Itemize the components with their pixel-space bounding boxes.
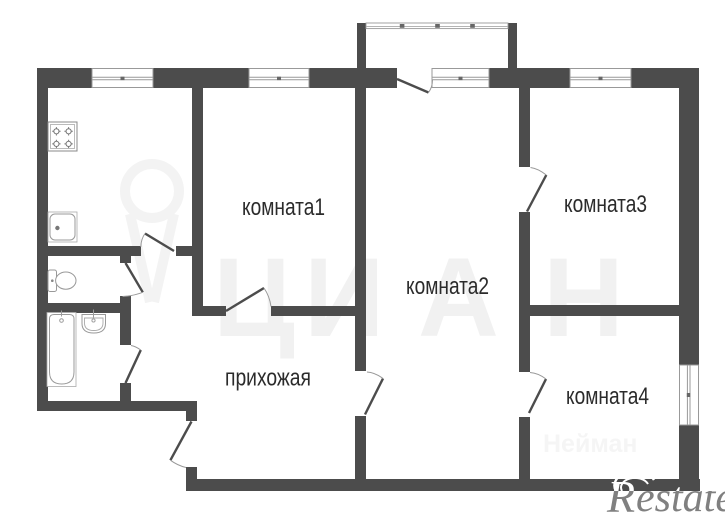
svg-text:И: И (304, 235, 385, 360)
svg-text:Нейман: Нейман (543, 430, 638, 458)
svg-text:комната2: комната2 (406, 273, 489, 300)
svg-text:комната1: комната1 (242, 194, 325, 221)
svg-text:Ц: Ц (213, 235, 295, 360)
svg-text:комната4: комната4 (566, 383, 649, 410)
svg-text:комната3: комната3 (564, 191, 647, 218)
svg-text:прихожая: прихожая (225, 365, 311, 392)
svg-text:Н: Н (543, 235, 624, 360)
